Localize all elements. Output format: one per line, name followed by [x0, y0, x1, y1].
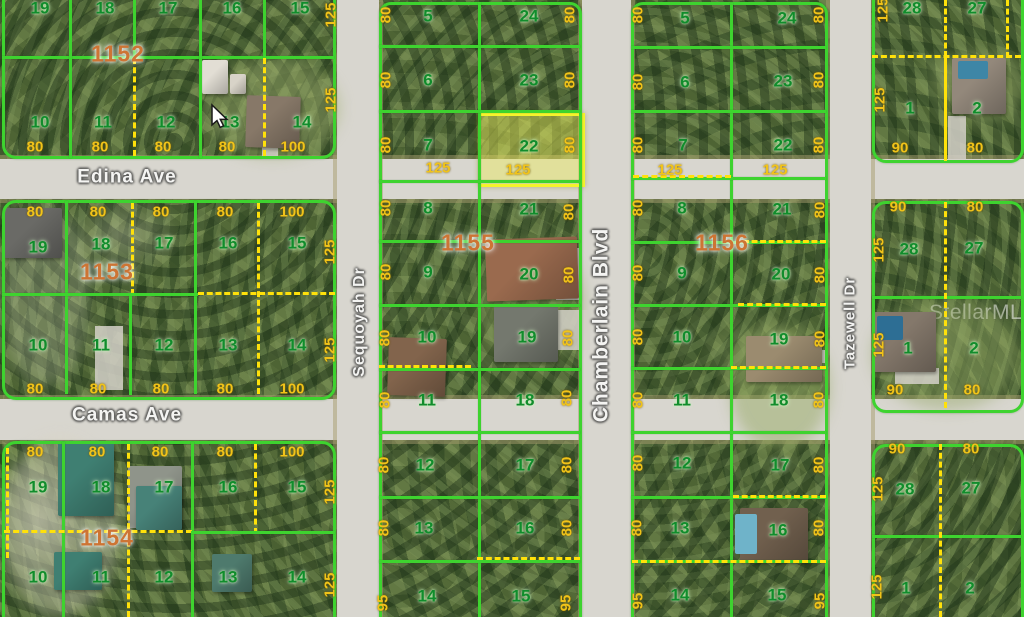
- lot-dimension-label: 125: [657, 163, 682, 178]
- lot-dimension-label: 80: [219, 140, 236, 155]
- lot-dimension-label: 80: [812, 520, 827, 537]
- street-label: Chamberlain Blvd: [591, 228, 612, 423]
- lot-number: 27: [962, 480, 981, 497]
- lot-dimension-label: 80: [631, 265, 646, 282]
- lot-dimension-label: 125: [876, 0, 891, 23]
- lot-number: 1: [905, 100, 914, 117]
- block-number: 1152: [91, 43, 145, 66]
- lot-dimension-label: 80: [560, 457, 575, 474]
- lot-dimension-label: 90: [890, 200, 907, 215]
- lot-number: 28: [900, 241, 919, 258]
- lot-number: 21: [520, 201, 539, 218]
- lot-number: 15: [512, 588, 531, 605]
- lot-dimension-label: 80: [631, 455, 646, 472]
- lot-number: 2: [965, 580, 974, 597]
- block-number: 1155: [441, 232, 495, 255]
- lot-number: 11: [418, 392, 436, 409]
- lot-dimension-label: 80: [963, 442, 980, 457]
- lot-number: 17: [771, 457, 790, 474]
- lot-number: 10: [29, 569, 48, 586]
- lot-dimension-label: 80: [217, 382, 234, 397]
- lot-dimension-label: 80: [813, 331, 828, 348]
- lot-dimension-label: 125: [324, 2, 339, 27]
- lot-dimension-label: 125: [505, 163, 530, 178]
- lot-dimension-label: 80: [813, 267, 828, 284]
- lot-number: 17: [155, 479, 174, 496]
- lot-dimension-label: 80: [217, 445, 234, 460]
- block-number: 1156: [695, 232, 749, 255]
- lot-number: 1: [903, 340, 912, 357]
- lot-number: 5: [423, 8, 432, 25]
- lot-dimension-label: 125: [323, 572, 338, 597]
- lot-number: 17: [159, 0, 178, 17]
- lot-number: 7: [678, 137, 687, 154]
- lot-dimension-label: 80: [377, 457, 392, 474]
- lot-number: 8: [423, 200, 432, 217]
- lot-dimension-label: 80: [379, 7, 394, 24]
- lot-number: 22: [520, 138, 539, 155]
- block-number: 1153: [80, 261, 134, 284]
- lot-dimension-label: 80: [560, 390, 575, 407]
- lot-dimension-label: 80: [812, 392, 827, 409]
- lot-number: 6: [680, 74, 689, 91]
- lot-number: 14: [288, 337, 307, 354]
- lot-number: 10: [31, 114, 50, 131]
- lot-number: 21: [773, 201, 792, 218]
- lot-dimension-label: 80: [563, 137, 578, 154]
- lot-number: 23: [774, 73, 793, 90]
- lot-dimension-label: 80: [153, 382, 170, 397]
- lot-dimension-label: 100: [279, 205, 304, 220]
- lot-number: 18: [92, 236, 111, 253]
- lot-dimension-label: 125: [872, 237, 887, 262]
- lot-dimension-label: 80: [27, 205, 44, 220]
- lot-number: 11: [94, 114, 112, 131]
- lot-dimension-label: 80: [27, 445, 44, 460]
- lot-dimension-label: 80: [967, 200, 984, 215]
- lot-dimension-label: 100: [279, 445, 304, 460]
- lot-dimension-label: 80: [631, 329, 646, 346]
- lot-number: 24: [520, 8, 539, 25]
- lot-number: 28: [896, 481, 915, 498]
- lot-number: 19: [29, 479, 48, 496]
- lot-dimension-label: 125: [324, 87, 339, 112]
- lot-dimension-label: 125: [762, 163, 787, 178]
- lot-dimension-label: 80: [967, 141, 984, 156]
- lot-number: 2: [972, 100, 981, 117]
- lot-dimension-label: 80: [631, 7, 646, 24]
- lot-dimension-label: 125: [425, 161, 450, 176]
- lot-number: 7: [423, 137, 432, 154]
- lot-dimension-label: 80: [379, 72, 394, 89]
- lot-number: 5: [680, 10, 689, 27]
- lot-dimension-label: 80: [631, 137, 646, 154]
- lot-dimension-label: 80: [630, 520, 645, 537]
- lot-number: 8: [677, 200, 686, 217]
- lot-number: 12: [673, 455, 692, 472]
- lot-dimension-label: 80: [562, 267, 577, 284]
- lot-dimension-label: 125: [873, 87, 888, 112]
- lot-number: 9: [423, 264, 432, 281]
- lot-dimension-label: 80: [563, 7, 578, 24]
- lot-number: 11: [673, 392, 691, 409]
- lot-number: 10: [29, 337, 48, 354]
- lot-number: 27: [968, 0, 987, 17]
- lot-dimension-label: 80: [964, 383, 981, 398]
- lot-dimension-label: 80: [378, 330, 393, 347]
- lot-number: 16: [769, 522, 788, 539]
- lot-number: 20: [772, 266, 791, 283]
- lot-dimension-label: 95: [813, 593, 828, 610]
- lot-dimension-label: 80: [378, 392, 393, 409]
- lot-number: 14: [288, 569, 307, 586]
- lot-number: 18: [96, 0, 115, 17]
- lot-number: 19: [770, 331, 789, 348]
- lot-number: 16: [223, 0, 242, 17]
- lot-number: 22: [774, 137, 793, 154]
- lot-dimension-label: 90: [887, 383, 904, 398]
- lot-number: 14: [671, 587, 690, 604]
- lot-number: 11: [92, 337, 110, 354]
- lot-dimension-label: 80: [631, 200, 646, 217]
- lot-dimension-label: 80: [562, 204, 577, 221]
- lot-dimension-label: 125: [323, 479, 338, 504]
- lot-number: 1: [901, 580, 910, 597]
- listing-photo-aerial-plat-map[interactable]: 1918171615101112131419181716151011121314…: [0, 0, 1024, 617]
- lot-number: 19: [31, 0, 50, 17]
- lot-dimension-label: 80: [631, 74, 646, 91]
- lot-number: 17: [516, 457, 535, 474]
- lot-number: 16: [219, 235, 238, 252]
- lot-number: 14: [293, 114, 312, 131]
- lot-number: 12: [155, 569, 174, 586]
- lot-dimension-label: 80: [561, 330, 576, 347]
- lot-dimension-label: 90: [892, 141, 909, 156]
- lot-dimension-label: 125: [323, 337, 338, 362]
- lot-dimension-label: 80: [152, 445, 169, 460]
- lot-number: 19: [518, 329, 537, 346]
- lot-number: 16: [219, 479, 238, 496]
- lot-number: 6: [423, 72, 432, 89]
- lot-number: 14: [418, 588, 437, 605]
- lot-dimension-label: 95: [631, 593, 646, 610]
- lot-dimension-label: 80: [90, 382, 107, 397]
- lot-dimension-label: 80: [379, 137, 394, 154]
- lot-dimension-label: 125: [323, 239, 338, 264]
- lot-dimension-label: 80: [812, 457, 827, 474]
- block-number: 1154: [80, 527, 134, 550]
- lot-dimension-label: 125: [872, 332, 887, 357]
- lot-dimension-label: 80: [812, 7, 827, 24]
- lot-dimension-label: 125: [870, 574, 885, 599]
- lot-dimension-label: 100: [279, 382, 304, 397]
- lot-number: 24: [778, 10, 797, 27]
- lot-dimension-label: 95: [376, 595, 391, 612]
- lot-number: 28: [903, 0, 922, 17]
- lot-number: 15: [288, 235, 307, 252]
- lot-number: 13: [219, 337, 238, 354]
- lot-number: 23: [520, 72, 539, 89]
- lot-number: 20: [520, 266, 539, 283]
- lot-number: 27: [965, 240, 984, 257]
- lot-number: 13: [415, 520, 434, 537]
- lot-dimension-label: 80: [27, 382, 44, 397]
- lot-dimension-label: 95: [559, 595, 574, 612]
- lot-dimension-label: 80: [92, 140, 109, 155]
- lot-number: 12: [157, 114, 176, 131]
- lot-dimension-label: 80: [560, 520, 575, 537]
- lot-dimension-label: 80: [631, 392, 646, 409]
- lot-number: 19: [29, 239, 48, 256]
- lot-dimension-label: 80: [812, 137, 827, 154]
- lot-dimension-label: 80: [812, 72, 827, 89]
- lot-number: 12: [416, 457, 435, 474]
- lot-dimension-label: 80: [153, 205, 170, 220]
- labels-layer: 1918171615101112131419181716151011121314…: [0, 0, 1024, 617]
- lot-number: 17: [155, 235, 174, 252]
- street-label: Edina Ave: [77, 168, 176, 187]
- lot-number: 15: [288, 479, 307, 496]
- lot-number: 15: [768, 587, 787, 604]
- lot-dimension-label: 90: [889, 442, 906, 457]
- lot-number: 12: [155, 337, 174, 354]
- lot-number: 2: [969, 340, 978, 357]
- lot-dimension-label: 80: [563, 72, 578, 89]
- lot-number: 13: [671, 520, 690, 537]
- lot-number: 15: [291, 0, 310, 17]
- lot-number: 16: [516, 520, 535, 537]
- lot-number: 18: [516, 392, 535, 409]
- lot-dimension-label: 80: [89, 445, 106, 460]
- street-label: Sequoyah Dr: [352, 267, 368, 377]
- lot-dimension-label: 80: [155, 140, 172, 155]
- street-label: Tazewell Dr: [843, 277, 858, 369]
- lot-number: 18: [92, 479, 111, 496]
- lot-number: 10: [673, 329, 692, 346]
- lot-dimension-label: 125: [871, 476, 886, 501]
- lot-dimension-label: 80: [379, 200, 394, 217]
- lot-dimension-label: 100: [280, 140, 305, 155]
- mouse-cursor-icon: [205, 102, 232, 132]
- street-label: Camas Ave: [72, 406, 182, 425]
- lot-number: 11: [92, 569, 110, 586]
- lot-dimension-label: 80: [90, 205, 107, 220]
- lot-dimension-label: 80: [379, 264, 394, 281]
- lot-number: 9: [677, 265, 686, 282]
- lot-number: 10: [418, 329, 437, 346]
- lot-number: 18: [770, 392, 789, 409]
- lot-number: 13: [219, 569, 238, 586]
- lot-dimension-label: 80: [813, 202, 828, 219]
- lot-dimension-label: 80: [27, 140, 44, 155]
- lot-dimension-label: 80: [217, 205, 234, 220]
- lot-dimension-label: 80: [377, 520, 392, 537]
